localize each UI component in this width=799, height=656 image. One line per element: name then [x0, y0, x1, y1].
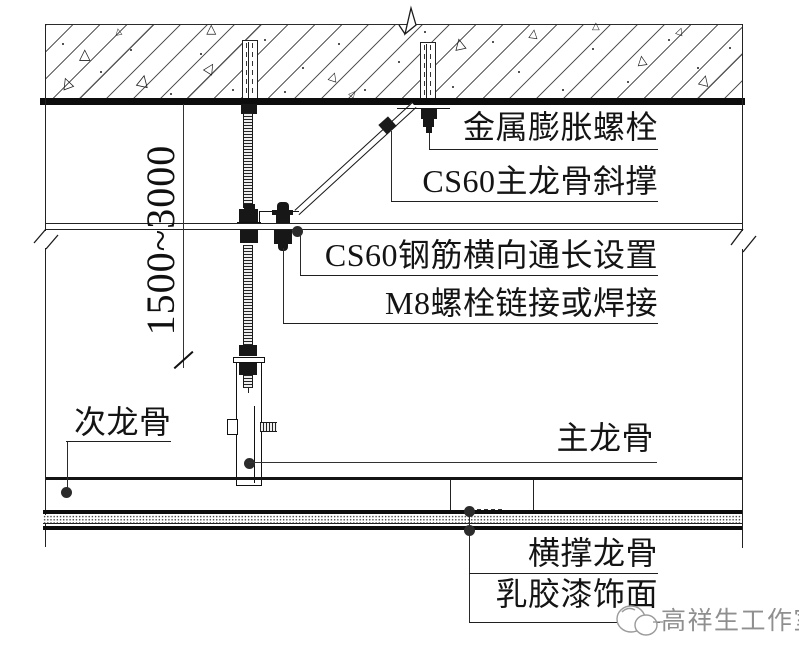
aggregate-triangle: △: [327, 68, 339, 82]
dimension-line: [183, 104, 184, 368]
aggregate-triangle: △: [202, 59, 219, 77]
dimension-text: 1500~3000: [141, 140, 181, 340]
label-main-keel-brace: CS60主龙骨斜撑: [422, 163, 658, 199]
anchor-sleeve-dash: [246, 43, 247, 97]
label-m8-bolt: M8螺栓链接或焊接: [385, 285, 658, 321]
aggregate-triangle: △: [636, 53, 648, 67]
anchor-rod-core: [248, 42, 249, 99]
rod-washer-line: [237, 222, 261, 224]
underline-expansion-bolt: [429, 149, 659, 150]
aggregate-triangle: △: [59, 73, 75, 91]
concrete-dot: [592, 48, 594, 50]
underline-secondary-keel: [66, 441, 171, 442]
concrete-dot: [364, 89, 366, 91]
m8-bolt-body: [276, 215, 290, 223]
aggregate-triangle: △: [79, 47, 91, 62]
concrete-dot: [284, 91, 286, 93]
underline-paint: [469, 622, 660, 623]
underline-brace: [391, 201, 659, 202]
leader-cross-keel-paint: [469, 512, 470, 622]
leader-dot-rebar: [292, 226, 303, 237]
aggregate-triangle: △: [592, 22, 600, 32]
concrete-slab-hatch: △△△△△△△△△△△△△△: [45, 24, 742, 101]
leader-main-keel: [249, 462, 657, 463]
label-latex-paint: 乳胶漆饰面: [495, 576, 658, 612]
underline-cross-keel: [469, 573, 659, 574]
right-border-line: [742, 24, 743, 548]
rod-lock-nut: [239, 345, 257, 356]
studio-watermark: 高祥生工作室: [661, 607, 799, 637]
aggregate-triangle: △: [206, 23, 216, 36]
expansion-anchor-right: [420, 42, 436, 101]
anchor-sleeve-dash: [424, 45, 425, 97]
label-main-keel: 主龙骨: [556, 420, 654, 456]
leader-secondary-keel: [67, 442, 68, 488]
anchor-rod-core: [426, 44, 427, 99]
m8-bolt-head: [277, 202, 289, 210]
aggregate-triangle: △: [528, 26, 539, 39]
concrete-dot: [697, 67, 699, 69]
left-break-mark: [34, 229, 46, 243]
aggregate-triangle: △: [136, 71, 151, 89]
concrete-dot: [398, 61, 400, 63]
concrete-dot: [200, 53, 202, 55]
concrete-dot: [562, 89, 564, 91]
label-expansion-bolt: 金属膨胀螺栓: [463, 109, 658, 145]
left-border-line: [45, 24, 46, 547]
diagonal-brace: [295, 103, 417, 216]
concrete-dot: [627, 81, 629, 83]
keel-web-plate: [254, 406, 255, 483]
left-break-mark: [46, 235, 58, 249]
concrete-dot: [729, 47, 731, 49]
cross-keel-left-edge: [450, 480, 451, 510]
rod-coupler-upper2: [239, 209, 258, 222]
anchor-nut-tier: [423, 119, 434, 127]
hanger-rod-upper: [243, 113, 253, 208]
panel-stipple-band: [43, 515, 742, 524]
concrete-dot: [452, 86, 454, 88]
concrete-dot: [668, 39, 670, 41]
slab-soffit-line: [40, 98, 745, 105]
leader-dot-main-keel: [244, 458, 255, 469]
rod-bottom-nut: [239, 363, 257, 375]
concrete-dot: [170, 93, 172, 95]
leader-expansion-bolt: [429, 133, 430, 149]
bracket-bolt-shaft: [260, 422, 277, 432]
concrete-dot: [518, 71, 520, 73]
label-rebar-run: CS60钢筋横向通长设置: [325, 237, 658, 273]
label-cross-support-keel: 横撑龙骨: [528, 535, 658, 571]
underline-rebar: [300, 275, 659, 276]
concrete-dot: [424, 31, 426, 33]
right-break-mask: [736, 231, 750, 249]
label-secondary-keel: 次龙骨: [74, 404, 172, 440]
aggregate-triangle: △: [114, 27, 122, 37]
panel-bottom-line: [43, 526, 742, 530]
concrete-dot: [492, 41, 494, 43]
concrete-dot: [302, 67, 304, 69]
bracket-bolt-head: [227, 419, 238, 435]
panel-dash-marks: [477, 509, 504, 511]
anchor-sleeve-dash: [430, 45, 431, 97]
leader-dot-secondary-keel: [61, 487, 72, 498]
panel-top-line: [43, 510, 742, 514]
expansion-anchor-left: [242, 40, 258, 101]
underline-m8: [283, 323, 659, 324]
hanger-rod-lower: [243, 245, 253, 355]
anchor-nut: [421, 108, 437, 119]
aggregate-triangle: △: [453, 34, 467, 51]
concrete-dot: [62, 43, 64, 45]
cross-keel-right-edge: [533, 480, 534, 510]
panel-thin-line: [43, 523, 742, 524]
aggregate-triangle: △: [697, 72, 711, 88]
leader-rebar: [300, 236, 301, 275]
rod-coupler-lower: [240, 230, 258, 243]
concrete-dot: [264, 39, 266, 41]
rod-bottom-threads: [243, 375, 253, 388]
concrete-dot: [100, 71, 102, 73]
main-keel-line: [46, 477, 742, 480]
right-break-mark: [743, 236, 756, 252]
m8-bolt-nut: [274, 230, 292, 244]
leader-m8: [283, 248, 284, 323]
concrete-dot: [130, 49, 132, 51]
anchor-sleeve-dash: [252, 43, 253, 97]
ceiling-detail-drawing: △△△△△△△△△△△△△△ 1500~3000: [0, 0, 799, 656]
rod-tip: [248, 388, 249, 393]
concrete-dot: [232, 89, 234, 91]
aggregate-triangle: △: [675, 26, 686, 38]
concrete-dot: [338, 43, 340, 45]
brace-foot-step: [259, 211, 260, 222]
leader-brace: [391, 131, 392, 201]
